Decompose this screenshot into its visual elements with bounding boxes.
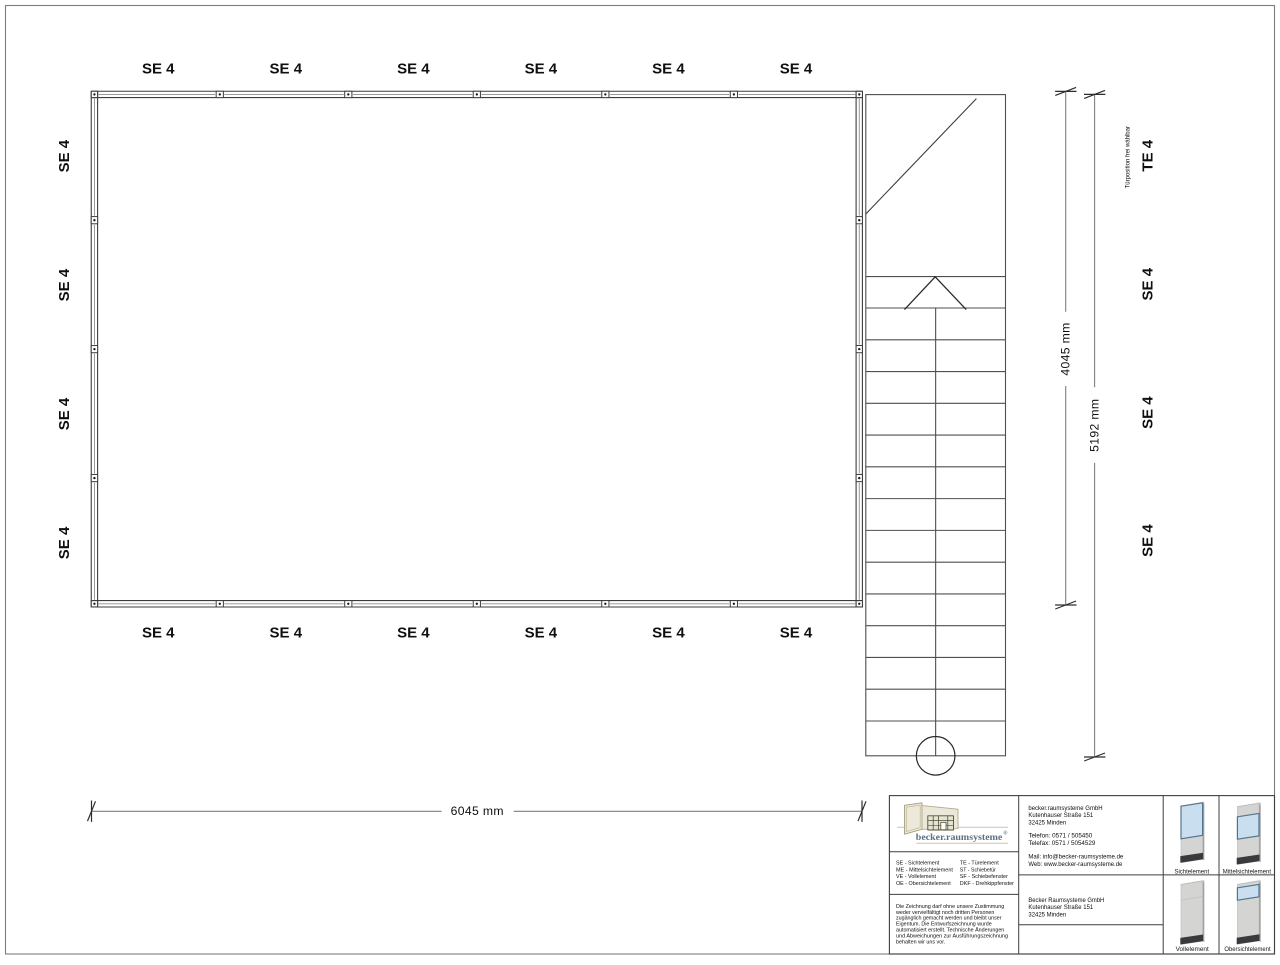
svg-text:behalten wir uns vor.: behalten wir uns vor. [896, 939, 946, 945]
svg-text:SE 4: SE 4 [397, 625, 430, 642]
svg-text:Sichtelement: Sichtelement [1174, 868, 1209, 875]
svg-text:becker.raumsysteme GmbH: becker.raumsysteme GmbH [1028, 805, 1102, 812]
svg-text:SE 4: SE 4 [56, 268, 73, 301]
svg-text:SE 4: SE 4 [1139, 267, 1156, 300]
svg-text:Türposition frei wählbar: Türposition frei wählbar [1125, 126, 1131, 188]
svg-text:Web: www.becker-raumsysteme.de: Web: www.becker-raumsysteme.de [1028, 861, 1122, 868]
svg-text:Telefon: 0571 / 505450: Telefon: 0571 / 505450 [1028, 833, 1092, 840]
svg-text:32425 Minden: 32425 Minden [1028, 819, 1066, 826]
svg-text:SE 4: SE 4 [780, 625, 813, 642]
svg-text:6045 mm: 6045 mm [451, 804, 504, 818]
svg-text:SE 4: SE 4 [397, 61, 430, 78]
svg-text:SE 4: SE 4 [525, 61, 558, 78]
svg-text:Becker Raumsysteme GmbH: Becker Raumsysteme GmbH [1028, 897, 1104, 904]
svg-text:SE 4: SE 4 [270, 625, 303, 642]
svg-text:VE - Vollelement: VE - Vollelement [896, 874, 936, 880]
svg-text:SE 4: SE 4 [270, 61, 303, 78]
svg-text:5192 mm: 5192 mm [1088, 399, 1102, 452]
svg-text:Obersichtelement: Obersichtelement [1224, 946, 1270, 953]
svg-text:TE 4: TE 4 [1139, 139, 1156, 171]
svg-text:SE 4: SE 4 [525, 625, 558, 642]
svg-text:Mittelsichtelement: Mittelsichtelement [1223, 868, 1271, 875]
svg-text:32425 Minden: 32425 Minden [1028, 911, 1066, 918]
svg-text:SE 4: SE 4 [780, 61, 813, 78]
svg-text:becker.raumsysteme: becker.raumsysteme [916, 833, 1003, 843]
svg-text:OE - Obersichtelement: OE - Obersichtelement [896, 881, 951, 887]
svg-text:Kutenhauser Straße 151: Kutenhauser Straße 151 [1028, 904, 1093, 911]
svg-text:4045 mm: 4045 mm [1059, 322, 1073, 375]
svg-text:SE 4: SE 4 [56, 139, 73, 172]
svg-text:SE 4: SE 4 [142, 61, 175, 78]
svg-text:SE - Sichtelement: SE - Sichtelement [896, 861, 940, 867]
svg-text:TE - Türelement: TE - Türelement [960, 861, 999, 867]
svg-text:ST - Schiebetür: ST - Schiebetür [960, 867, 996, 873]
svg-text:Telefax: 0571 / 5054529: Telefax: 0571 / 5054529 [1028, 840, 1095, 847]
svg-text:SF - Schiebefenster: SF - Schiebefenster [960, 874, 1008, 880]
svg-text:SE 4: SE 4 [652, 61, 685, 78]
svg-text:SE 4: SE 4 [652, 625, 685, 642]
svg-text:DKF - Drehkippfenster: DKF - Drehkippfenster [960, 881, 1014, 887]
svg-text:SE 4: SE 4 [142, 625, 175, 642]
svg-text:SE 4: SE 4 [1139, 396, 1156, 429]
svg-text:ME - Mittelsichtelement: ME - Mittelsichtelement [896, 867, 953, 873]
svg-text:SE 4: SE 4 [56, 526, 73, 559]
svg-text:SE 4: SE 4 [1139, 524, 1156, 557]
svg-text:Kutenhauser Straße 151: Kutenhauser Straße 151 [1028, 812, 1093, 819]
svg-text:SE 4: SE 4 [56, 397, 73, 430]
svg-text:Mail: info@becker-raumsysteme.: Mail: info@becker-raumsysteme.de [1028, 854, 1123, 861]
svg-text:Vollelement: Vollelement [1176, 946, 1209, 953]
